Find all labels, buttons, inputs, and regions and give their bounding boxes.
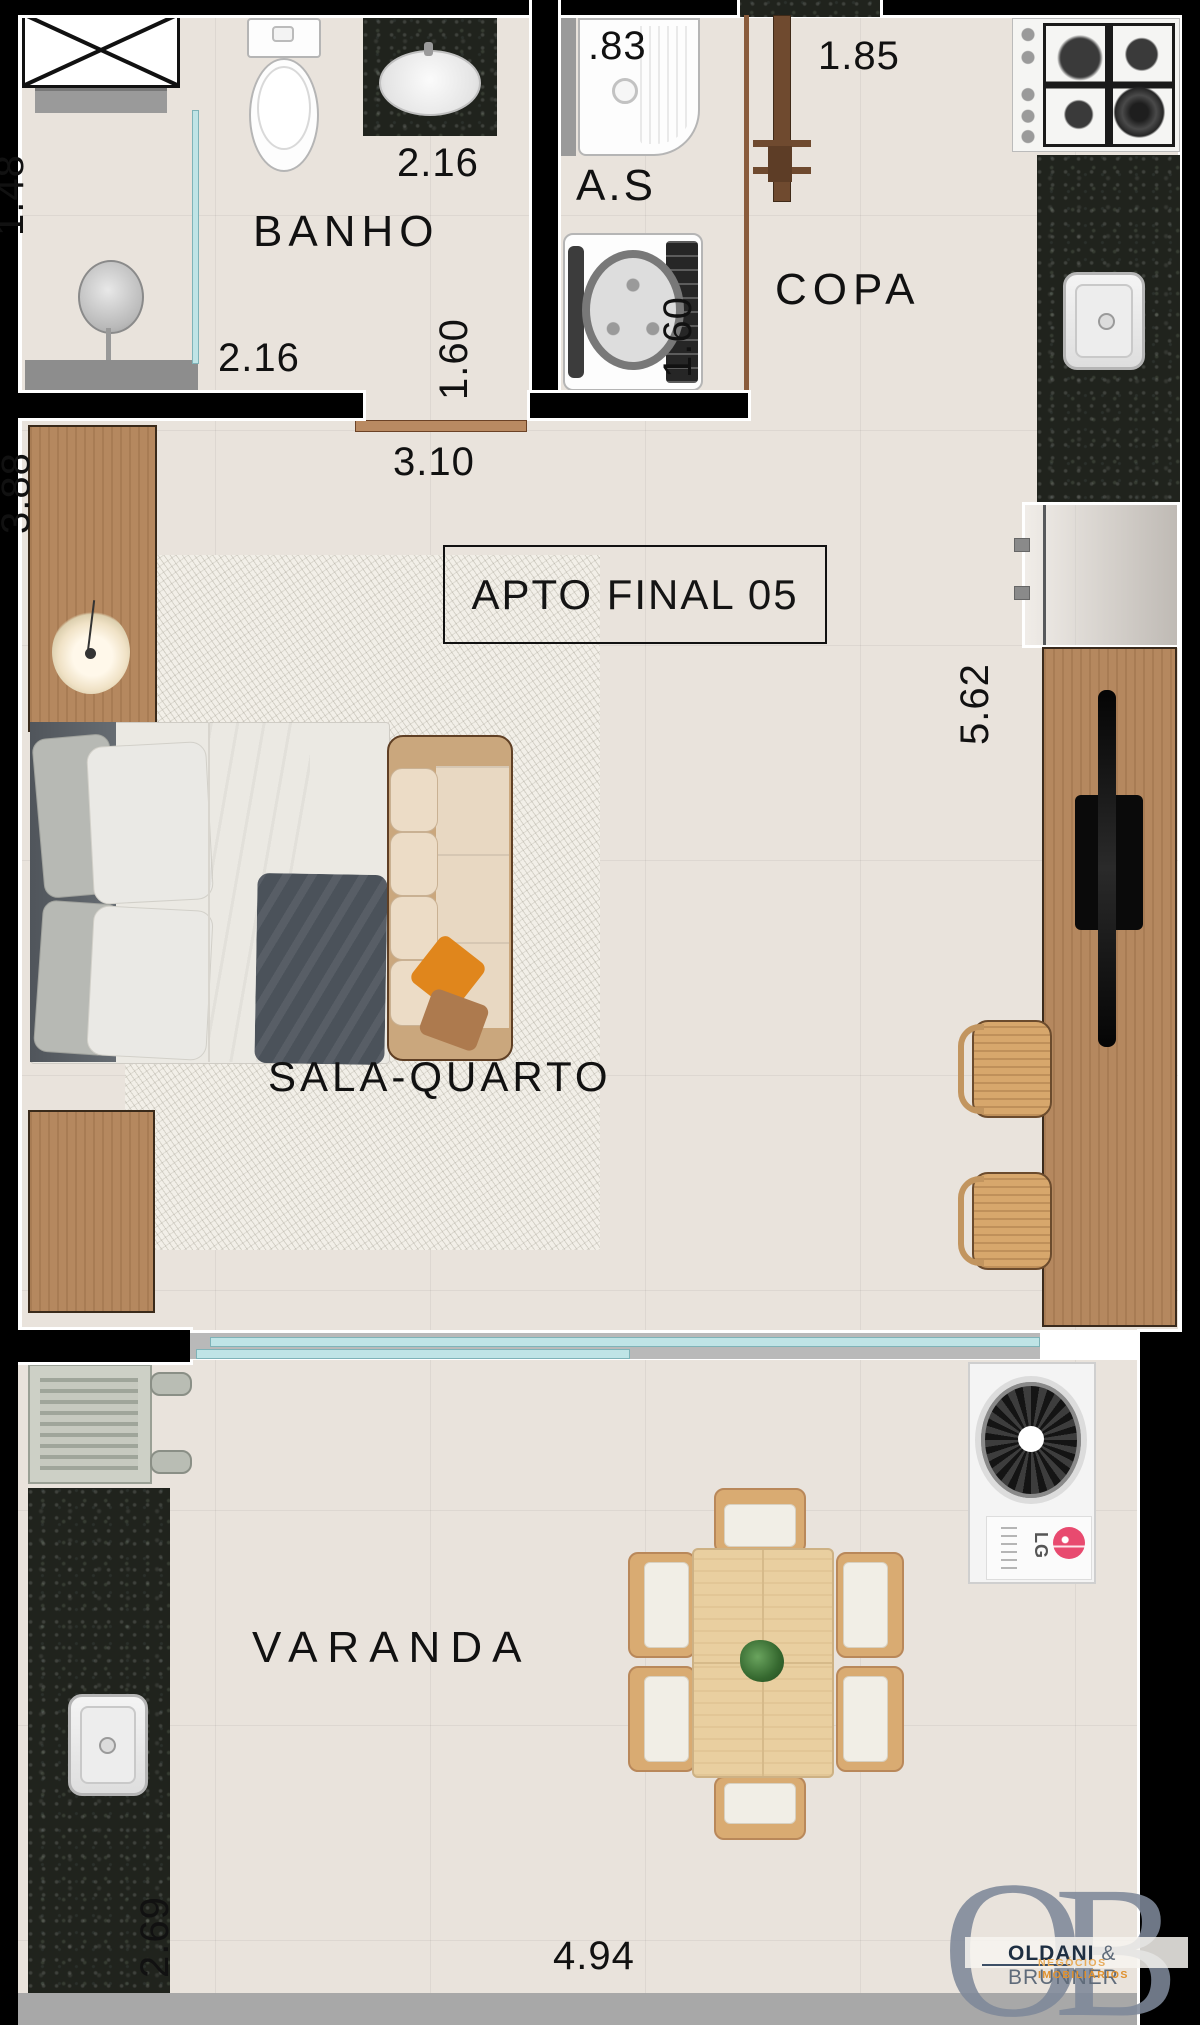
fridge-hinge-top bbox=[1014, 538, 1030, 552]
floor-plan: LG 1.48 BANHO 2.16 2.16 1.60 .83 A.S 1.8… bbox=[0, 0, 1200, 2025]
dim-varanda-left: 2.69 bbox=[135, 1896, 175, 1978]
dining-chair-right-1 bbox=[836, 1552, 904, 1658]
laundry-tank-drain bbox=[612, 78, 638, 104]
wall-banho-right bbox=[532, 0, 558, 418]
dim-banho-right: 1.60 bbox=[434, 318, 474, 400]
service-partition bbox=[744, 15, 749, 393]
side-dresser-lower bbox=[28, 1110, 155, 1313]
grill-handle-bottom bbox=[150, 1450, 192, 1474]
shower-drain-step bbox=[25, 360, 198, 390]
cooktop-knobs bbox=[1017, 25, 1039, 145]
lg-logo-icon bbox=[1053, 1527, 1085, 1559]
shower-glass-partition bbox=[192, 110, 199, 364]
balcony-sink-drain bbox=[99, 1737, 116, 1754]
bed-pillow-white-2 bbox=[86, 905, 214, 1061]
label-sala: SALA-QUARTO bbox=[268, 1056, 612, 1098]
toilet-flush-button bbox=[272, 26, 294, 42]
wall-below-banho bbox=[18, 393, 363, 418]
fridge-hinge-bottom bbox=[1014, 586, 1030, 600]
bed-pillow-white-1 bbox=[86, 741, 214, 905]
label-servico: A.S bbox=[576, 164, 656, 208]
label-copa: COPA bbox=[775, 268, 920, 312]
kitchen-sink-drain bbox=[1098, 313, 1115, 330]
entry-threshold bbox=[737, 0, 885, 17]
balcony-door-glass-1 bbox=[210, 1337, 1040, 1347]
dim-copa-top: 1.85 bbox=[818, 36, 900, 76]
label-banho: BANHO bbox=[253, 210, 439, 254]
dim-varanda-bottom: 4.94 bbox=[553, 1936, 635, 1976]
wall-top-left bbox=[0, 0, 737, 15]
dim-sala-door: 3.10 bbox=[393, 442, 475, 482]
ac-unit: LG bbox=[968, 1362, 1096, 1584]
dim-banho-top: 2.16 bbox=[397, 143, 479, 183]
label-varanda: VARANDA bbox=[252, 1626, 531, 1670]
logo-tagline-word2: IMOBILIÁRIOS bbox=[1038, 1969, 1129, 1981]
dining-chair-top bbox=[714, 1488, 806, 1554]
dim-sala-right: 5.62 bbox=[955, 663, 995, 745]
ac-fan-hub bbox=[1018, 1426, 1044, 1452]
wall-service-bottom bbox=[530, 393, 748, 418]
logo-tagline-word1: NEGÓCIOS bbox=[1038, 1957, 1107, 1969]
dining-chair-left-2 bbox=[628, 1666, 696, 1772]
shaft-x-icon bbox=[25, 15, 177, 85]
grill-handle-top bbox=[150, 1372, 192, 1396]
entry-door-handle-block bbox=[768, 146, 792, 182]
dim-tanque: .83 bbox=[588, 26, 647, 66]
vanity-tap bbox=[424, 42, 433, 56]
laundry-backsplash bbox=[560, 18, 576, 156]
toilet-seat-line bbox=[257, 66, 311, 150]
table-plant bbox=[740, 1640, 784, 1682]
dim-sala-left: 3.88 bbox=[0, 452, 36, 534]
cooktop-grates bbox=[1043, 23, 1175, 147]
cooktop bbox=[1012, 18, 1180, 152]
balcony-door-glass-2 bbox=[196, 1349, 630, 1359]
grill-slats bbox=[40, 1378, 138, 1470]
pendant-lamp-dot bbox=[85, 648, 96, 659]
dining-chair-bottom bbox=[714, 1776, 806, 1840]
wall-top-right bbox=[883, 0, 1200, 15]
laundry-tank-ribs bbox=[640, 26, 692, 144]
dim-banho-bottom: 2.16 bbox=[218, 338, 300, 378]
grill-appliance bbox=[28, 1364, 152, 1484]
sofa-back-cushion-1 bbox=[390, 768, 438, 832]
tv-screen bbox=[1098, 690, 1116, 1047]
bed-blanket bbox=[254, 873, 387, 1065]
sofa-back-cushion-2 bbox=[390, 832, 438, 896]
bar-stool-1 bbox=[972, 1020, 1052, 1118]
dim-shower-width: 1.48 bbox=[0, 154, 30, 236]
shower-head-icon bbox=[78, 260, 144, 334]
unit-title: APTO FINAL 05 bbox=[471, 571, 798, 619]
dining-chair-left-1 bbox=[628, 1552, 696, 1658]
wall-sala-varanda bbox=[18, 1330, 190, 1362]
vanity-sink bbox=[379, 50, 481, 116]
banho-sliding-door bbox=[355, 420, 527, 432]
fridge bbox=[1025, 505, 1177, 645]
dim-copa-left: 1.60 bbox=[658, 296, 698, 378]
balcony-sink bbox=[68, 1694, 148, 1796]
dining-chair-right-2 bbox=[836, 1666, 904, 1772]
ac-label-lines bbox=[1001, 1525, 1017, 1569]
ac-brand-text: LG bbox=[1030, 1532, 1051, 1559]
ac-brand-panel: LG bbox=[986, 1516, 1092, 1580]
kitchen-sink bbox=[1063, 272, 1145, 370]
shaft-box bbox=[22, 12, 180, 88]
logo-tagline: NEGÓCIOS IMOBILIÁRIOS bbox=[1038, 1957, 1200, 1981]
bar-stool-2 bbox=[972, 1172, 1052, 1270]
unit-title-box: APTO FINAL 05 bbox=[443, 545, 827, 644]
shower-threshold bbox=[35, 88, 167, 113]
